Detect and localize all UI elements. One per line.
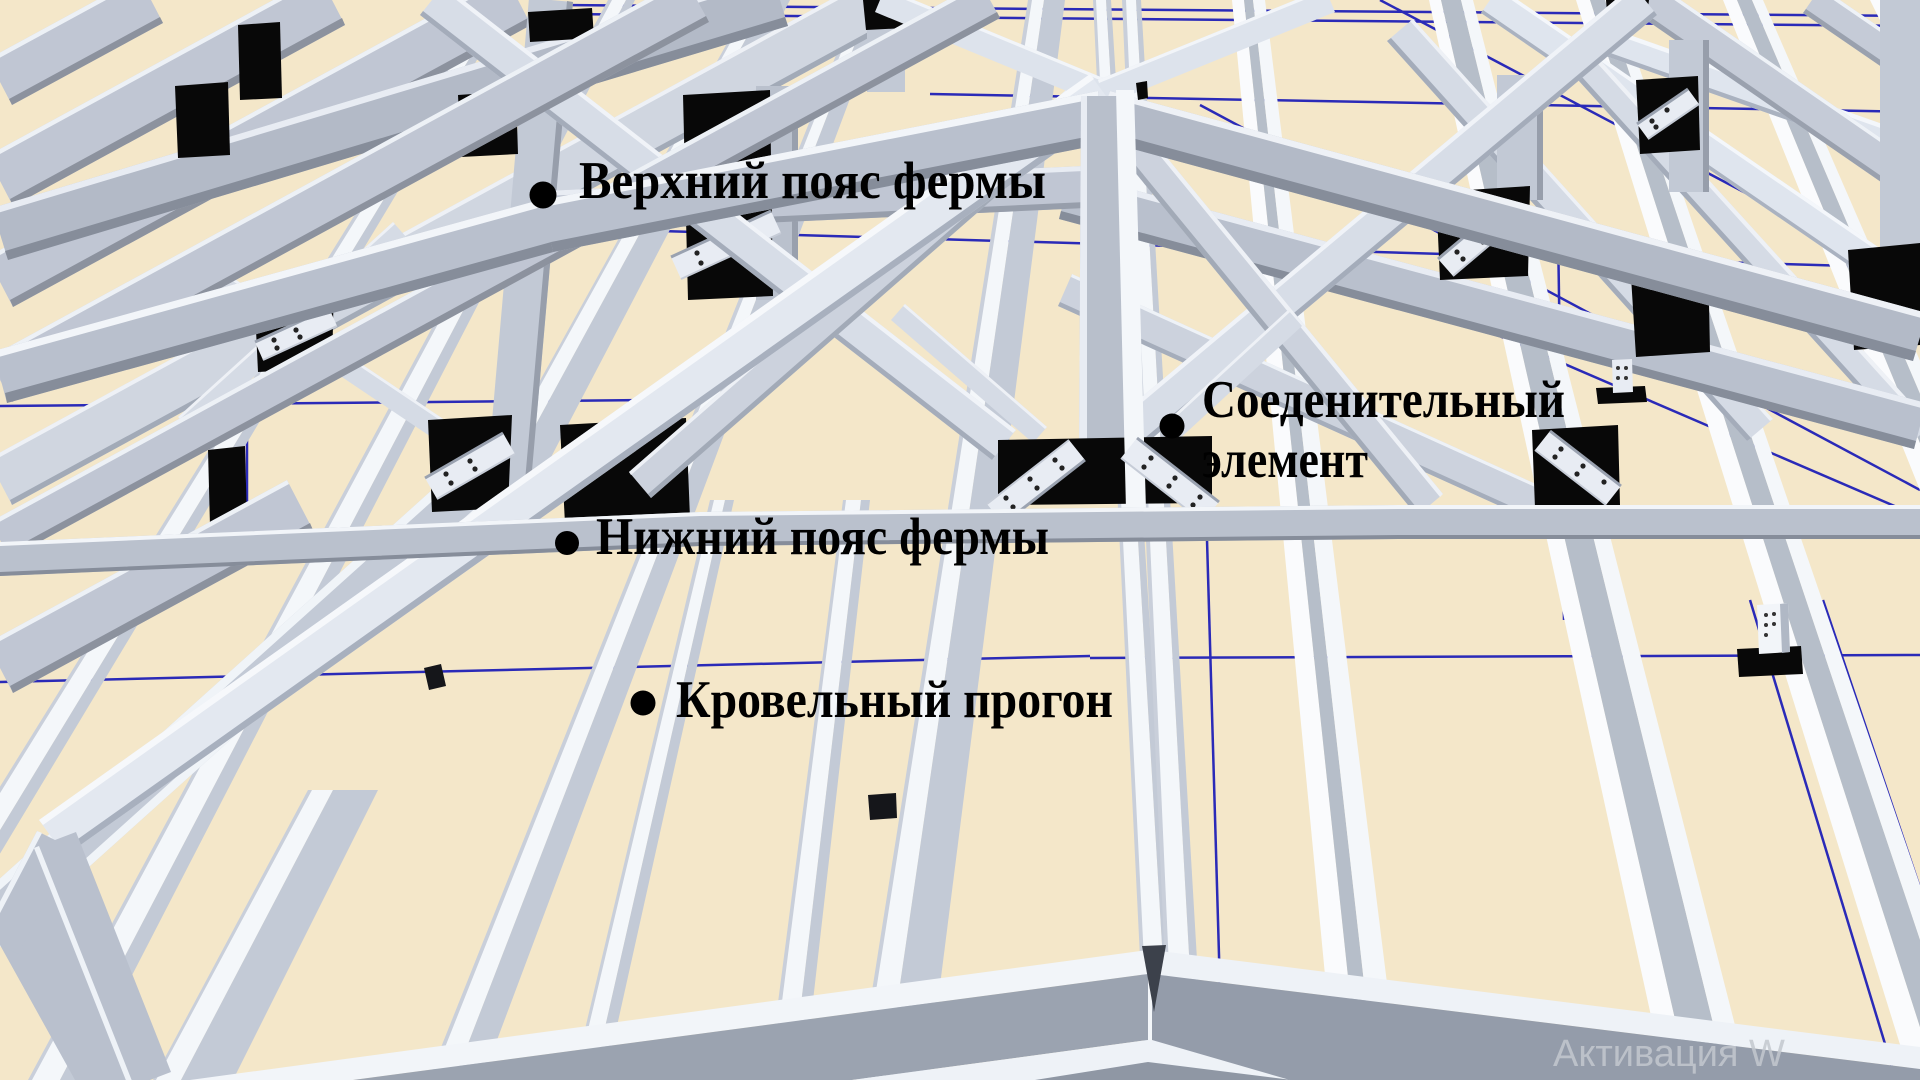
svg-text:Активация W: Активация W: [1553, 1033, 1785, 1075]
svg-text:элемент: элемент: [1202, 431, 1368, 489]
svg-text:Нижний пояс фермы: Нижний пояс фермы: [596, 508, 1049, 566]
svg-text:Соеденительный: Соеденительный: [1202, 371, 1565, 429]
svg-text:Кровельный прогон: Кровельный прогон: [676, 671, 1113, 729]
svg-text:Верхний пояс фермы: Верхний пояс фермы: [579, 152, 1046, 210]
